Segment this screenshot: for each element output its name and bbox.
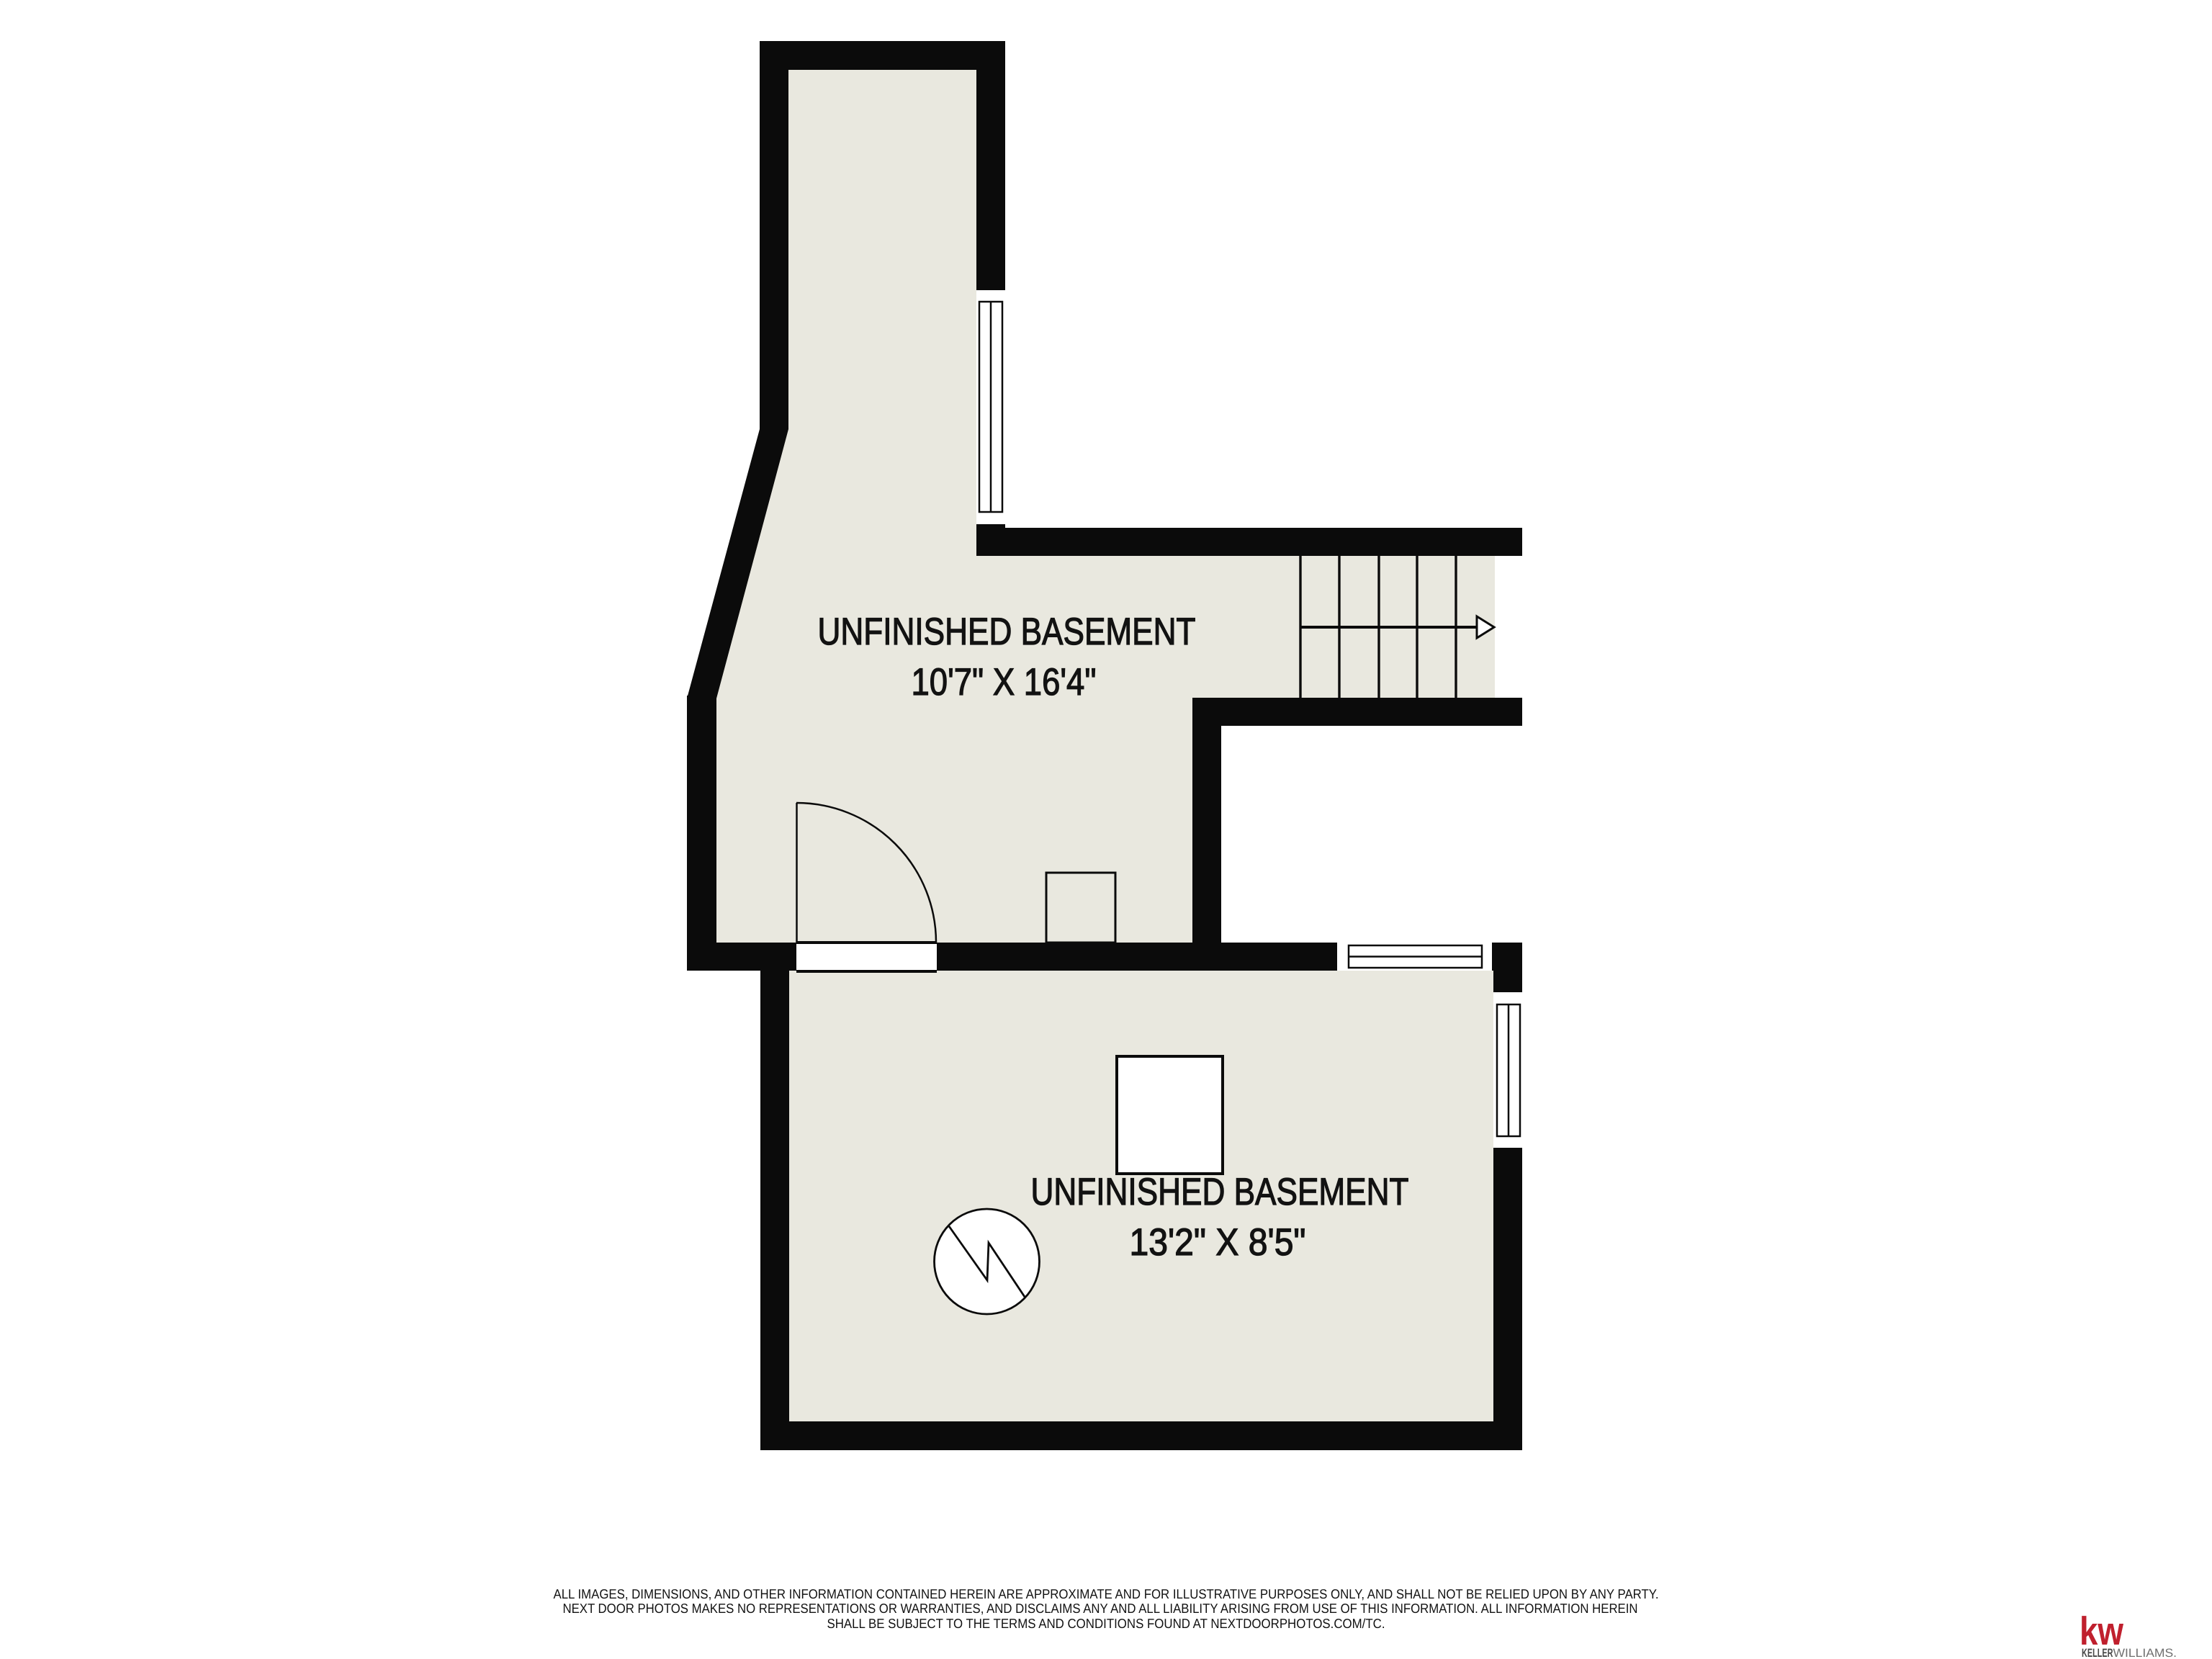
svg-text:SHALL BE SUBJECT TO THE TERMS: SHALL BE SUBJECT TO THE TERMS AND CONDIT… [827, 1616, 1385, 1631]
svg-text:WILLIAMS.: WILLIAMS. [2113, 1647, 2177, 1659]
svg-text:NEXT DOOR PHOTOS MAKES NO REPR: NEXT DOOR PHOTOS MAKES NO REPRESENTATION… [563, 1601, 1638, 1616]
svg-text:UNFINISHED BASEMENT: UNFINISHED BASEMENT [818, 611, 1196, 653]
svg-text:UNFINISHED BASEMENT: UNFINISHED BASEMENT [1031, 1171, 1409, 1213]
svg-text:10'7" X 16'4": 10'7" X 16'4" [912, 661, 1097, 703]
svg-text:KELLER: KELLER [2082, 1647, 2113, 1659]
svg-text:13'2" X 8'5": 13'2" X 8'5" [1130, 1221, 1306, 1264]
svg-text:ALL IMAGES, DIMENSIONS, AND OT: ALL IMAGES, DIMENSIONS, AND OTHER INFORM… [554, 1586, 1659, 1601]
